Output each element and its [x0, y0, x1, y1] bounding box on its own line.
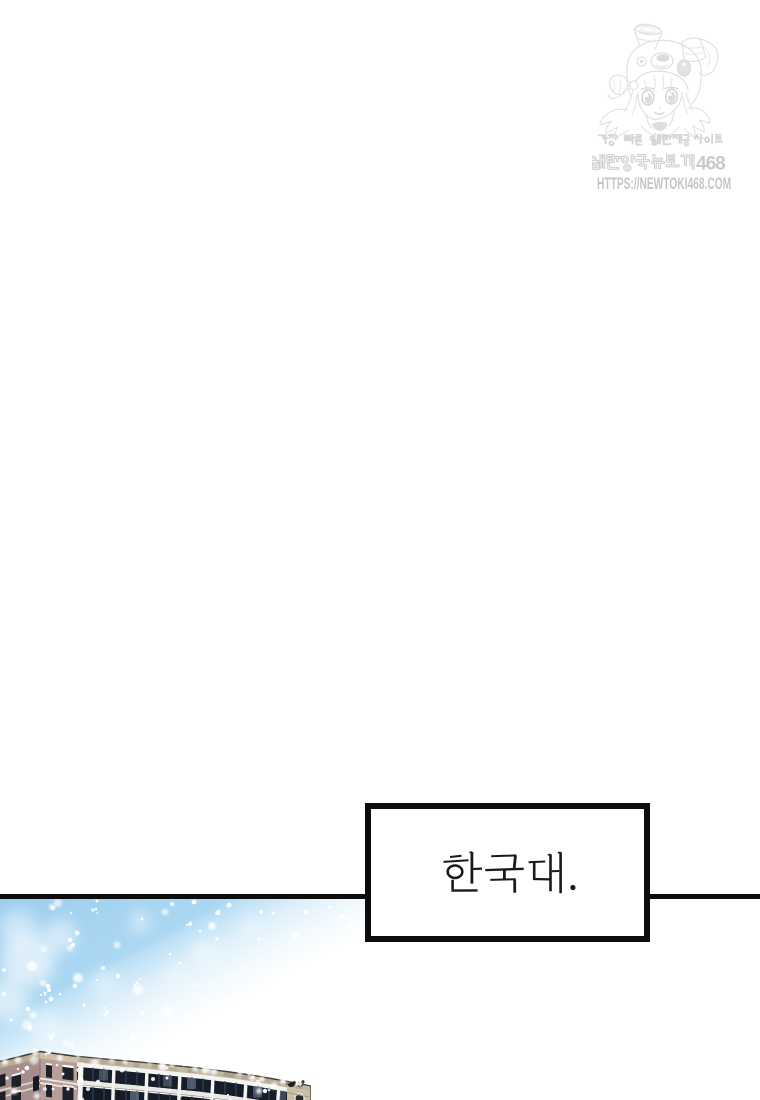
svg-text:468: 468: [696, 154, 725, 173]
